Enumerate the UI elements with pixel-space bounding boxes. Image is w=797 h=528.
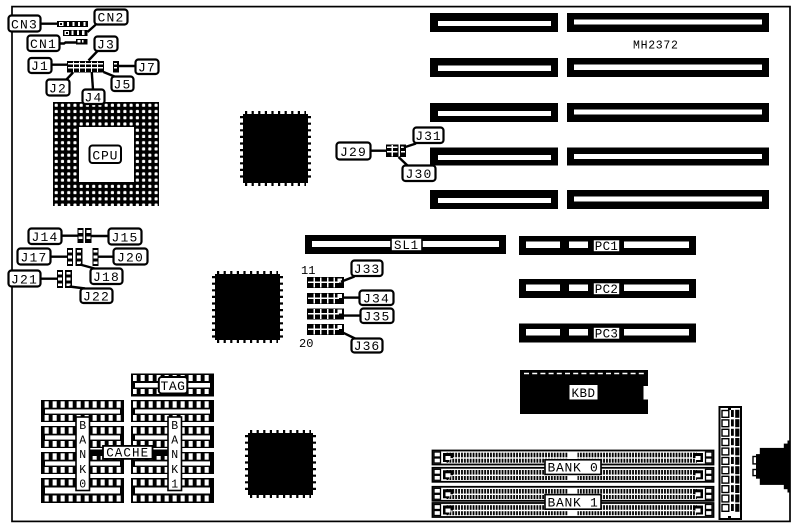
svg-text:J36: J36 <box>354 339 380 354</box>
svg-text:J31: J31 <box>415 129 441 144</box>
svg-text:J33: J33 <box>354 262 380 277</box>
svg-text:N: N <box>79 449 86 462</box>
svg-text:J30: J30 <box>405 167 432 182</box>
svg-text:N: N <box>171 449 178 462</box>
svg-text:J14: J14 <box>31 230 58 245</box>
svg-text:B: B <box>171 420 178 433</box>
svg-text:K: K <box>171 464 178 477</box>
svg-text:K: K <box>79 464 86 477</box>
svg-text:J22: J22 <box>83 289 110 304</box>
svg-text:PC1: PC1 <box>595 240 618 254</box>
svg-text:J29: J29 <box>340 145 367 160</box>
svg-text:J3: J3 <box>97 37 115 52</box>
svg-text:MH2372: MH2372 <box>633 40 679 53</box>
svg-text:J4: J4 <box>84 90 102 105</box>
svg-text:CN2: CN2 <box>97 11 124 26</box>
svg-text:J5: J5 <box>113 77 131 92</box>
svg-text:BANK 1: BANK 1 <box>547 495 598 510</box>
svg-text:CN3: CN3 <box>11 17 38 32</box>
svg-text:J7: J7 <box>138 61 156 76</box>
svg-text:CN1: CN1 <box>30 37 57 52</box>
svg-text:PC2: PC2 <box>595 283 618 297</box>
svg-text:SL1: SL1 <box>394 239 419 253</box>
svg-text:J2: J2 <box>49 82 67 97</box>
svg-text:J21: J21 <box>11 272 38 287</box>
svg-text:KBD: KBD <box>571 387 595 401</box>
svg-text:J20: J20 <box>117 250 144 265</box>
svg-text:PC3: PC3 <box>595 328 618 342</box>
svg-text:J15: J15 <box>111 230 138 245</box>
svg-text:B: B <box>79 420 86 433</box>
svg-text:11: 11 <box>301 264 315 278</box>
svg-text:0: 0 <box>79 478 86 491</box>
svg-text:BANK 0: BANK 0 <box>547 461 598 476</box>
svg-text:J34: J34 <box>363 291 390 306</box>
svg-text:J17: J17 <box>20 250 47 265</box>
svg-text:CPU: CPU <box>92 149 118 164</box>
svg-text:J35: J35 <box>363 309 390 324</box>
svg-text:A: A <box>171 435 178 448</box>
svg-text:20: 20 <box>299 337 313 351</box>
svg-text:J18: J18 <box>93 270 120 285</box>
svg-text:J1: J1 <box>31 59 49 74</box>
svg-text:TAG: TAG <box>161 379 186 394</box>
svg-text:CACHE: CACHE <box>106 447 149 461</box>
svg-text:1: 1 <box>171 478 178 491</box>
svg-text:A: A <box>79 435 86 448</box>
